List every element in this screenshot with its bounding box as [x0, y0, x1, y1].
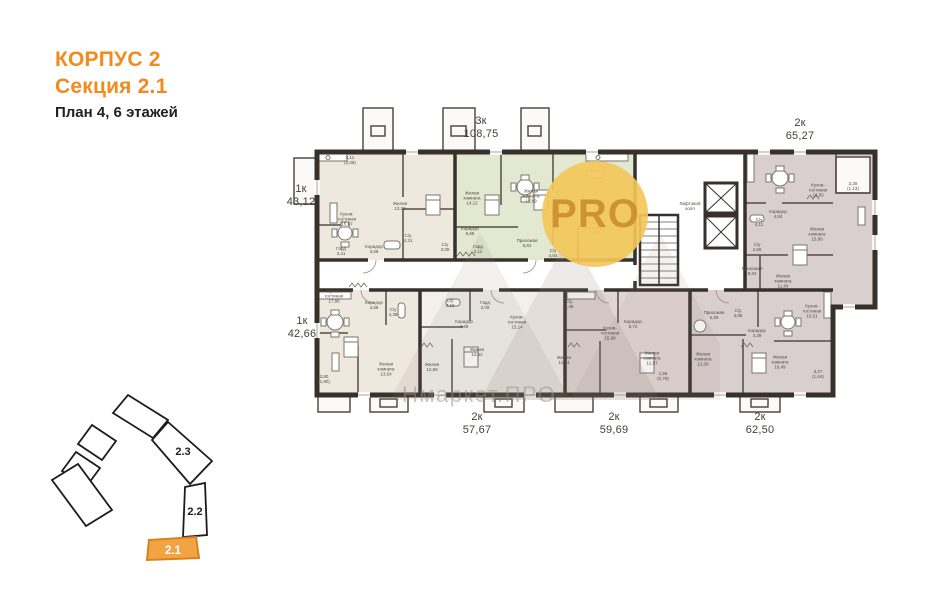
- floor-plan: [288, 95, 888, 445]
- minimap-building-block: [78, 425, 116, 460]
- plan-header: КОРПУС 2 Секция 2.1 План 4, 6 этажей: [55, 46, 178, 124]
- site-watermark: Нмаркет.ПРО: [402, 382, 556, 408]
- pro-watermark-text: PRO: [550, 192, 640, 237]
- floor-plan-page: КОРПУС 2 Секция 2.1 План 4, 6 этажей: [0, 0, 941, 600]
- minimap-building-block: [52, 464, 112, 526]
- plan-subtitle: План 4, 6 этажей: [55, 102, 178, 124]
- minimap-section-2-1[interactable]: [147, 537, 199, 560]
- building-title: КОРПУС 2: [55, 46, 178, 73]
- elevator-shafts: [705, 183, 737, 248]
- minimap-section-2-3[interactable]: [152, 422, 212, 484]
- section-title: Секция 2.1: [55, 73, 178, 100]
- pro-watermark-badge: PRO: [542, 161, 648, 267]
- minimap-section-2-2[interactable]: [183, 483, 207, 537]
- section-minimap: [30, 388, 230, 578]
